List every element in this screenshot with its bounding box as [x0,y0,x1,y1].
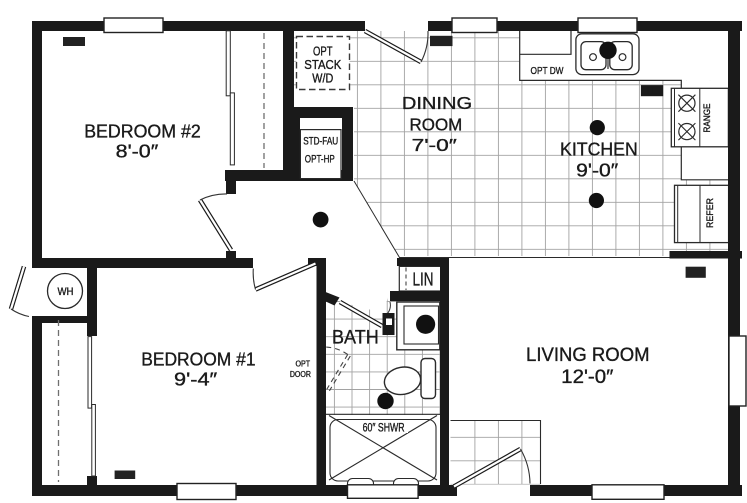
svg-text:7'-0″: 7'-0″ [412,135,457,155]
svg-text:STACK: STACK [304,58,342,72]
svg-text:12'-0″: 12'-0″ [561,367,613,388]
svg-text:ROOM: ROOM [410,114,463,134]
svg-text:DOOR: DOOR [290,370,311,379]
svg-text:9'-4″: 9'-4″ [174,369,218,389]
svg-text:W/D: W/D [312,72,333,86]
svg-text:OPT: OPT [313,45,333,59]
svg-text:OPT: OPT [296,359,311,368]
svg-text:60″ SHWR: 60″ SHWR [363,423,405,435]
svg-text:OPT-HP: OPT-HP [305,154,335,166]
svg-text:BATH: BATH [332,328,379,349]
svg-text:8'-0″: 8'-0″ [116,142,159,162]
svg-text:WH: WH [58,286,74,298]
svg-text:BEDROOM #2: BEDROOM #2 [84,122,201,142]
svg-text:LIVING ROOM: LIVING ROOM [526,345,650,366]
svg-text:OPT DW: OPT DW [531,65,564,77]
svg-text:DINING: DINING [402,93,472,113]
svg-text:BEDROOM #1: BEDROOM #1 [141,350,255,370]
svg-text:IL: IL [647,86,658,96]
svg-text:STD-FAU: STD-FAU [303,136,338,148]
svg-text:LIN: LIN [413,270,434,290]
svg-text:KITCHEN: KITCHEN [560,140,638,160]
svg-text:REFER: REFER [705,198,716,228]
svg-text:RANGE: RANGE [702,104,713,133]
svg-text:9'-0″: 9'-0″ [576,161,619,181]
